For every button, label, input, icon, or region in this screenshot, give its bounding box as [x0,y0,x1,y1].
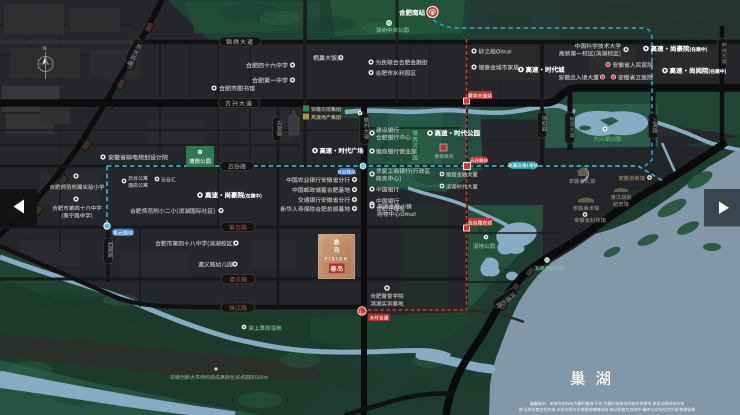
svg-text:安徽创新大市场科技成果转化试点园区600m: 安徽创新大市场科技成果转化试点园区600m [170,374,269,381]
svg-text:湿地公园: 湿地公园 [473,242,496,250]
svg-text:合肥南站: 合肥南站 [398,7,426,17]
svg-text:购物中心Omall: 购物中心Omall [377,209,416,218]
svg-text:云谷路站: 云谷路站 [470,158,488,164]
svg-text:FISIOR: FISIOR [325,257,349,263]
svg-text:安徽省人民医院: 安徽省人民医院 [613,60,654,69]
svg-text:中国农业银行安徽省分行: 中国农业银行安徽省分行 [286,175,350,184]
svg-text:云谷路东站: 云谷路东站 [468,219,492,226]
svg-text:中国银行: 中国银行 [376,185,399,194]
svg-text:包河大道: 包河大道 [568,116,575,138]
svg-text:纪念馆: 纪念馆 [613,200,630,208]
svg-text:滨湖时代大厦: 滨湖时代大厦 [446,183,478,191]
svg-text:新华人寿保险合肥总部基地: 新华人寿保险合肥总部基地 [280,204,350,213]
svg-text:商 品房买卖合同为准 本区位图为示意图非精确测绘 部分配套为: 商 品房买卖合同为准 本区位图为示意图非精确测绘 部分配套为规划中 最终以实际交… [519,407,696,413]
svg-text:云谷路: 云谷路 [228,162,246,171]
svg-text:合肥银行中心: 合肥银行中心 [376,133,411,142]
svg-text:安徽交控集团: 安徽交控集团 [311,106,341,113]
svg-text:繁华大道站: 繁华大道站 [468,92,492,99]
svg-text:宿松路: 宿松路 [541,115,549,132]
svg-text:中国邮政储蓄合肥基地: 中国邮政储蓄合肥基地 [292,185,350,194]
svg-text:紫云路站: 紫云路站 [113,230,133,237]
svg-text:西藏路: 西藏路 [107,241,115,258]
svg-text:安徽美术馆: 安徽美术馆 [573,204,600,212]
svg-text:遵义路幼儿园: 遵义路幼儿园 [198,260,233,269]
svg-text:方兴大道: 方兴大道 [225,99,253,108]
svg-text:酒店公寓: 酒店公寓 [128,182,148,189]
svg-text:上海路: 上海路 [651,117,658,134]
svg-text:银泰金城市家居: 银泰金城市家居 [479,63,520,72]
svg-text:春岛: 春岛 [330,263,344,273]
svg-text:高速·时代广场: 高速·时代广场 [320,146,365,155]
svg-text:巢湖: 巢湖 [570,367,621,389]
svg-text:N: N [43,45,47,52]
svg-text:珠江路: 珠江路 [229,303,247,312]
svg-text:徽州大道: 徽州大道 [363,117,371,139]
svg-text:紫云路: 紫云路 [229,223,247,232]
svg-text:为民联合合肥金融街: 为民联合合肥金融街 [376,58,428,67]
svg-text:塘西公园: 塘西公园 [189,157,212,165]
svg-text:合肥市水利园区: 合肥市水利园区 [376,68,417,77]
svg-text:(南宁路中学): (南宁路中学) [61,212,92,220]
svg-text:春岛: 春岛 [332,239,341,254]
svg-text:高速·时代公园: 高速·时代公园 [435,128,481,138]
svg-text:合肥第一中学: 合肥第一中学 [252,76,288,85]
svg-text:滨湖湿地学校: 滨湖湿地学校 [534,265,564,272]
svg-text:徽银金融大厦: 徽银金融大厦 [446,171,478,179]
svg-text:高新第一校区(滨湖校区): 高新第一校区(滨湖校区) [559,49,621,58]
svg-text:合肥师范附属实验小学: 合肥师范附属实验小学 [49,183,105,191]
svg-text:大圩互通: 大圩互通 [370,315,389,321]
svg-text:滨湖实训基地: 滨湖实训基地 [370,300,404,308]
svg-text:栖巢大饭店: 栖巢大饭店 [313,53,343,62]
svg-text:遵义路: 遵义路 [229,275,247,284]
svg-text:云谷公寓: 云谷公寓 [128,175,148,182]
svg-text:云谷汇: 云谷汇 [161,177,176,184]
svg-text:香樟雅苑: 香樟雅苑 [434,153,453,160]
svg-text:塘西河公园: 塘西河公园 [411,130,419,160]
svg-text:轨道交通1号线: 轨道交通1号线 [508,163,539,169]
svg-text:安徽省科技馆: 安徽省科技馆 [574,216,606,224]
svg-text:砂之船Omall: 砂之船Omall [479,47,512,56]
svg-text:安徽名人馆: 安徽名人馆 [569,177,596,185]
svg-text:古翠路: 古翠路 [276,120,283,137]
svg-text:锦绣大道: 锦绣大道 [226,37,254,46]
svg-text:辶: 辶 [359,309,364,316]
svg-text:方兴湖公园: 方兴湖公园 [593,135,621,143]
svg-text:合肥师范附小二小(滨湖国际社区): 合肥师范附小二小(滨湖国际社区) [130,206,215,215]
svg-text:交通银行安徽省分行: 交通银行安徽省分行 [298,195,350,204]
svg-text:庐州大道: 庐州大道 [720,42,727,64]
svg-text:高速地产集团: 高速地产集团 [311,114,341,121]
svg-text:骆岗中央公园: 骆岗中央公园 [376,26,410,34]
svg-text:安徽创新馆: 安徽创新馆 [619,174,646,182]
svg-text:合肥市第四十八中学(滨湖校区): 合肥市第四十八中学(滨湖校区) [155,239,235,248]
svg-text:合肥四十六中学: 合肥四十六中学 [246,61,288,70]
svg-text:安徽出入境大厦: 安徽出入境大厦 [558,73,599,82]
svg-text:政务中心): 政务中心) [376,174,401,183]
svg-text:安徽省邮电规划设计院: 安徽省邮电规划设计院 [108,153,168,162]
svg-text:安徽省立医院: 安徽省立医院 [618,73,653,82]
svg-text:合肥市图书馆: 合肥市图书馆 [219,84,255,93]
svg-text:岸上草原湿地: 岸上草原湿地 [249,324,283,332]
